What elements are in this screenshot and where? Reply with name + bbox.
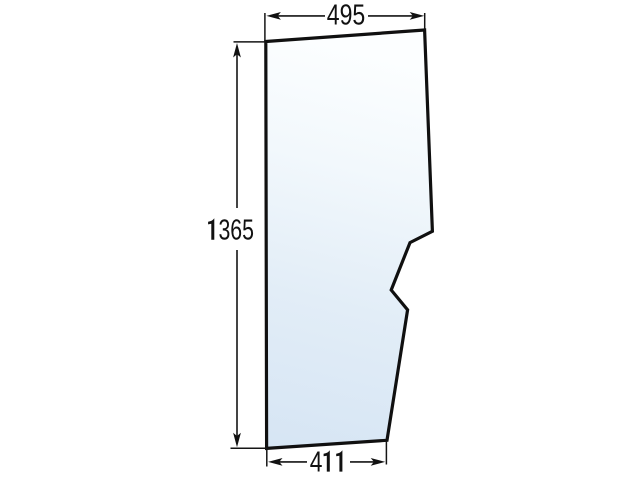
svg-text:4: 4 xyxy=(310,447,323,479)
svg-text:495: 495 xyxy=(327,0,366,32)
svg-text:365: 365 xyxy=(218,215,254,247)
